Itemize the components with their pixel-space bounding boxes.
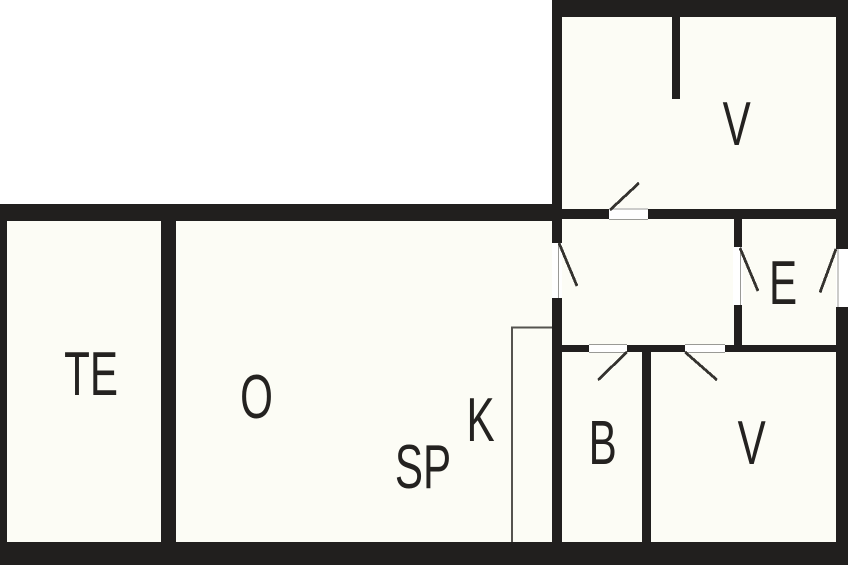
svg-text:V: V	[738, 409, 767, 478]
svg-text:TE: TE	[64, 340, 118, 409]
svg-text:V: V	[723, 90, 752, 159]
svg-text:E: E	[769, 249, 797, 318]
svg-text:SP: SP	[395, 433, 451, 502]
svg-text:K: K	[466, 386, 494, 455]
svg-text:O: O	[240, 363, 273, 432]
svg-text:B: B	[589, 409, 617, 478]
